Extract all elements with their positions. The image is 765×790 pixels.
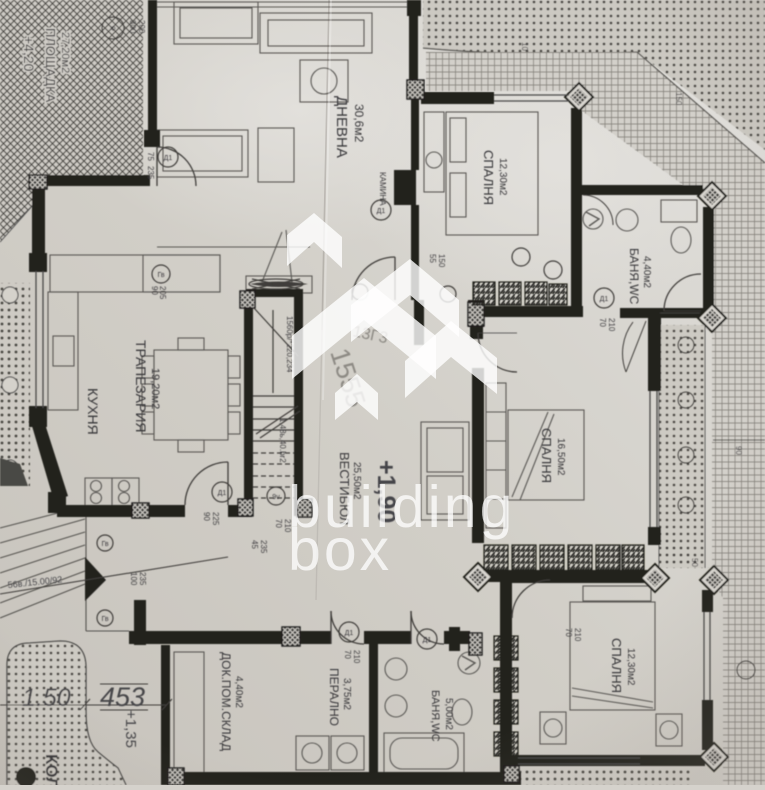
svg-text:box: box [288, 517, 392, 583]
